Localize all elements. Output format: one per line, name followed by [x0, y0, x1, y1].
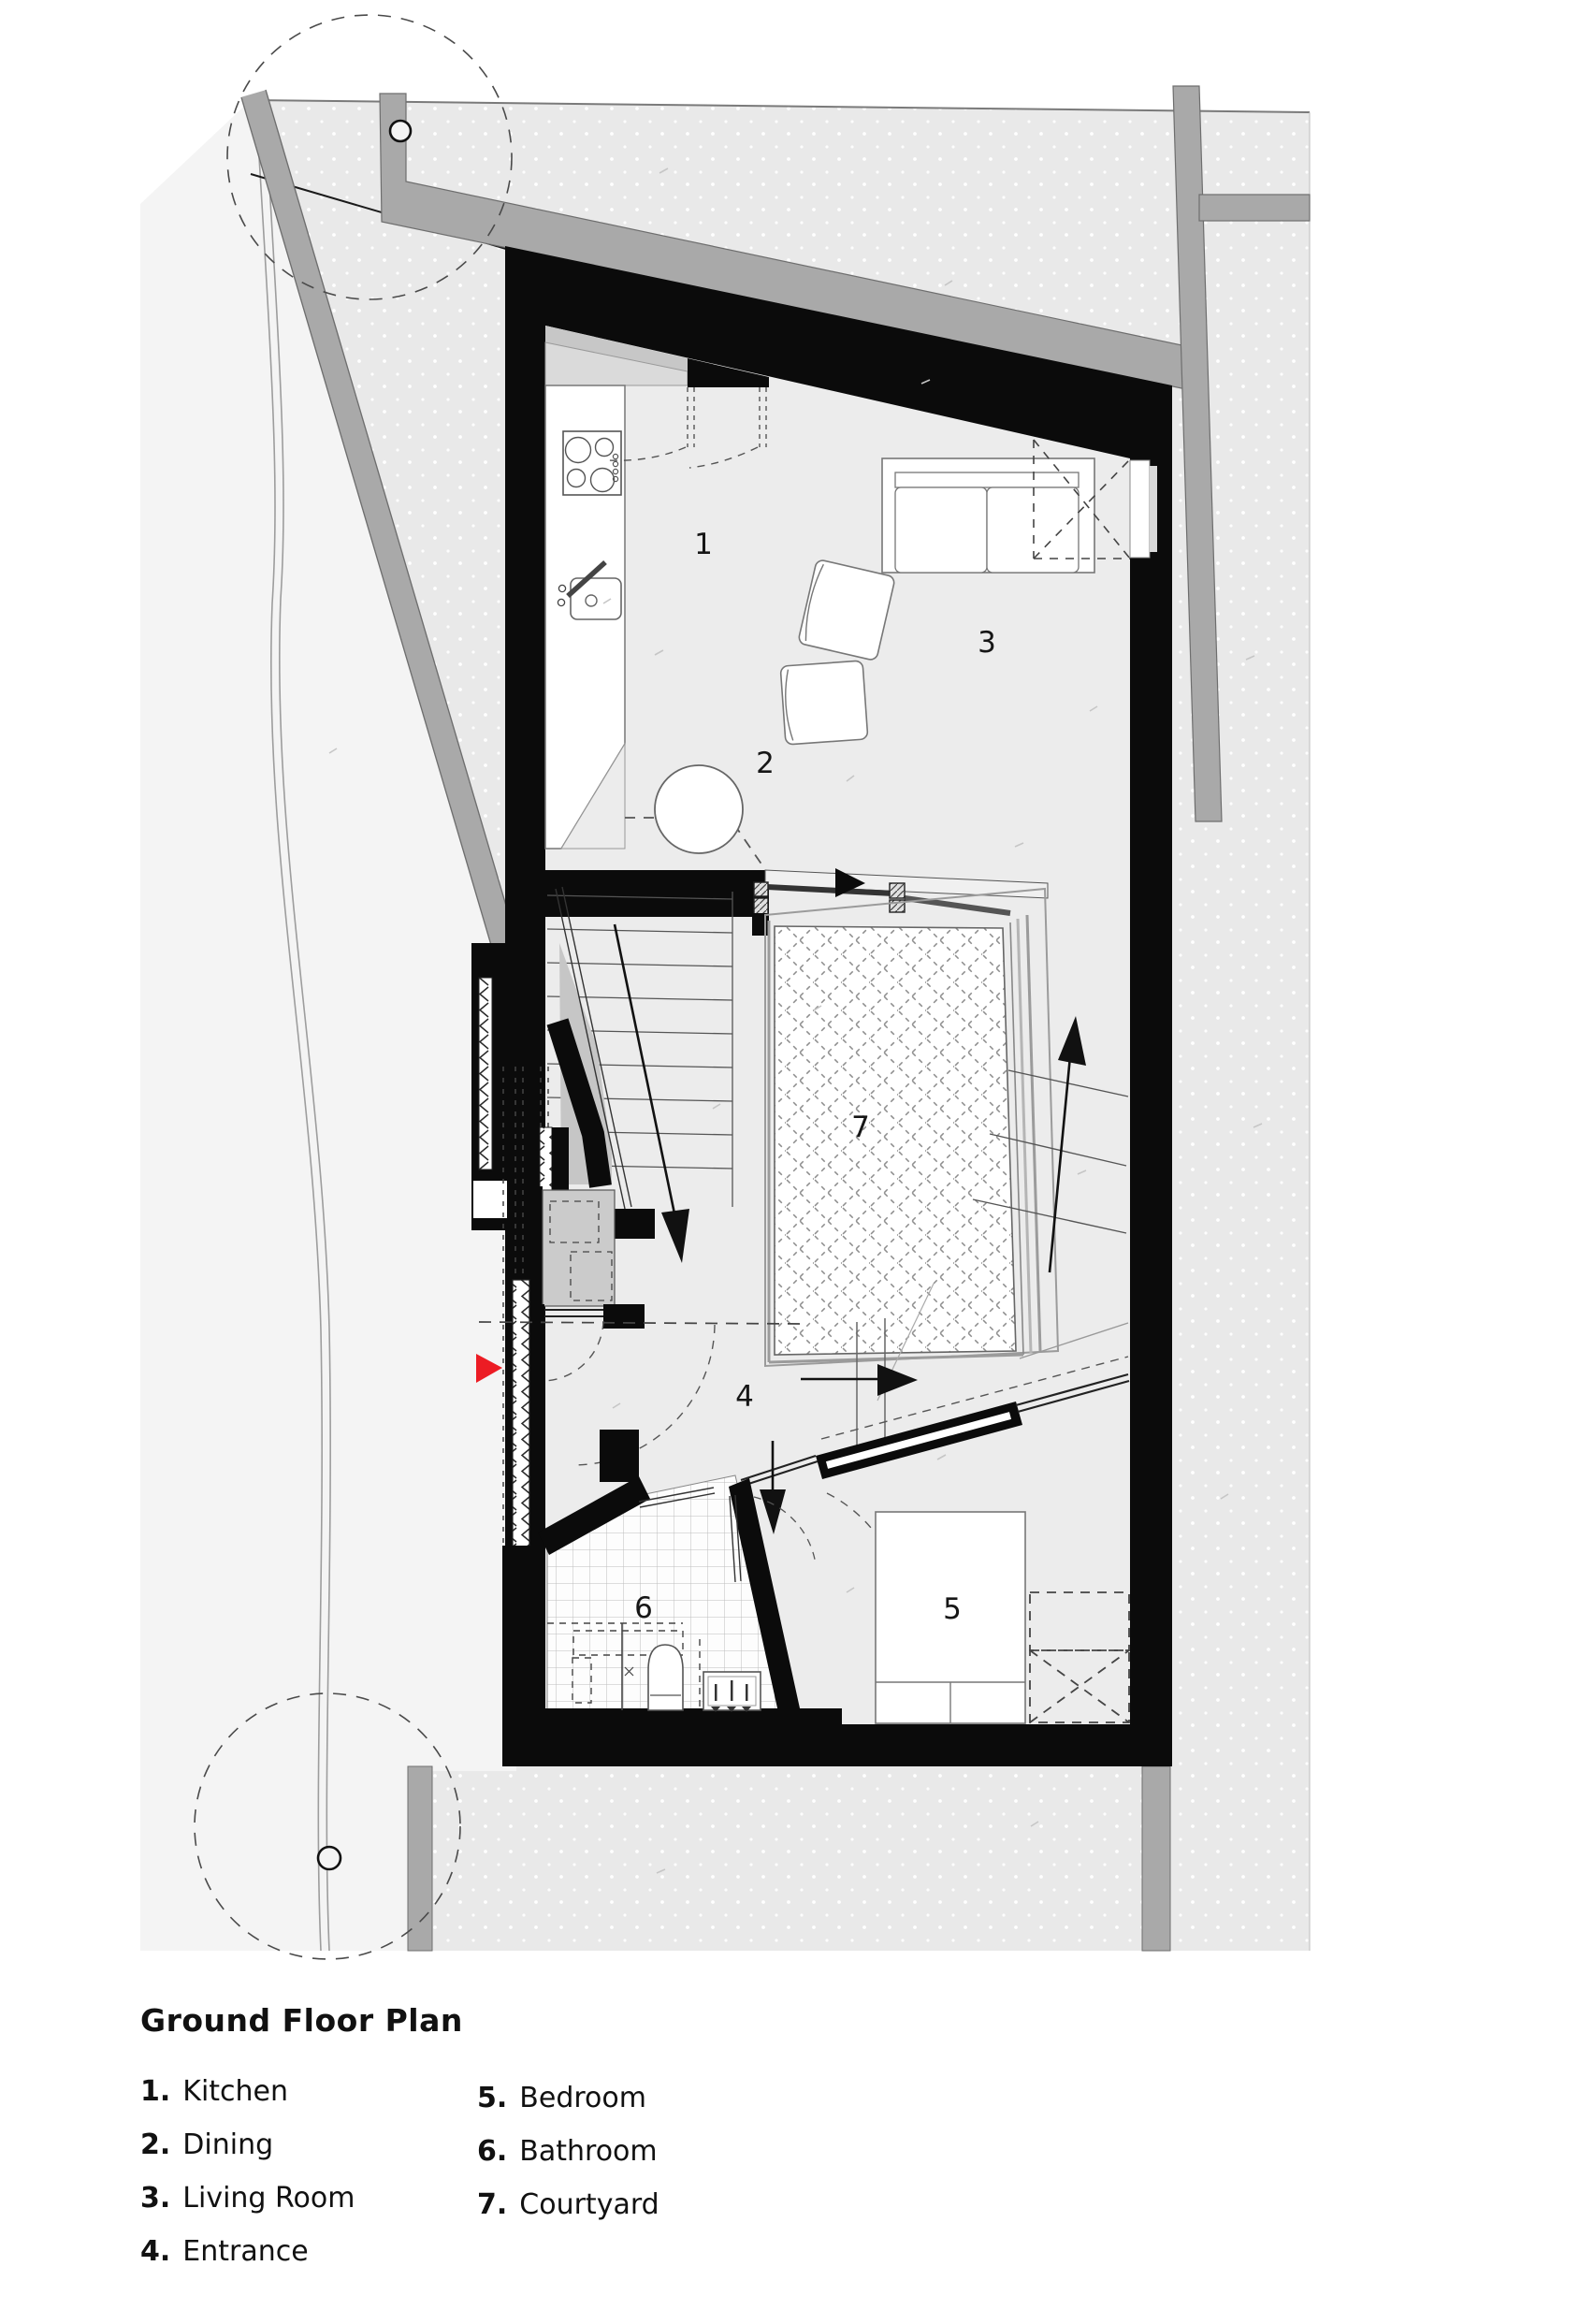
- legend-item-dining: 2. Dining: [140, 2118, 355, 2171]
- floor-plan-page: 1 2 3: [0, 0, 1594, 2324]
- courtyard-paving: [775, 926, 1016, 1355]
- legend-item-bedroom: 5. Bedroom: [477, 2071, 659, 2125]
- east-wall-niche: [1130, 460, 1150, 558]
- bath-south-wall: [502, 1708, 842, 1766]
- west-wall-lower: [502, 1546, 545, 1729]
- road-east-branch: [1199, 195, 1310, 221]
- wall-under-dining: [545, 870, 769, 917]
- tree-trunk-south: [318, 1847, 341, 1869]
- legend-item-living-room: 3. Living Room: [140, 2171, 355, 2225]
- legend-item-courtyard: 7. Courtyard: [477, 2178, 659, 2231]
- east-wall-niche-back: [1150, 466, 1157, 552]
- floor-plan-drawing: 1 2 3: [0, 0, 1594, 2324]
- stove: [563, 431, 621, 495]
- sofa: [882, 458, 1094, 573]
- bumpout-window: [473, 1181, 507, 1218]
- road-south-west: [408, 1766, 432, 1951]
- bumpout-insulation: [479, 978, 492, 1169]
- hall-wall-block: [600, 1430, 639, 1482]
- road-south-east: [1142, 1766, 1170, 1951]
- mullion: [890, 883, 905, 898]
- mullion: [754, 898, 768, 915]
- toilet: [648, 1645, 683, 1710]
- legend-item-entrance: 4. Entrance: [140, 2225, 355, 2278]
- legend: Ground Floor Plan 1. Kitchen 2. Dining 3…: [140, 2002, 1057, 2289]
- plan-title: Ground Floor Plan: [140, 2002, 1057, 2039]
- tree-trunk-north: [390, 121, 411, 141]
- shower: [703, 1672, 761, 1712]
- room-label-living-room: 3: [978, 626, 996, 660]
- room-label-dining: 2: [756, 747, 775, 780]
- room-label-courtyard: 7: [851, 1111, 870, 1144]
- room-label-entrance: 4: [735, 1380, 754, 1414]
- entrance-wall-insulation: [513, 1280, 529, 1548]
- dining-table: [655, 765, 743, 853]
- courtyard-corner-post: [752, 913, 769, 936]
- legend-item-kitchen: 1. Kitchen: [140, 2065, 355, 2118]
- room-label-bathroom: 6: [634, 1591, 653, 1625]
- room-label-kitchen: 1: [694, 528, 713, 561]
- legend-item-bathroom: 6. Bathroom: [477, 2125, 659, 2178]
- room-label-bedroom: 5: [943, 1592, 962, 1626]
- armchair-2: [780, 661, 868, 745]
- mullion: [754, 882, 768, 896]
